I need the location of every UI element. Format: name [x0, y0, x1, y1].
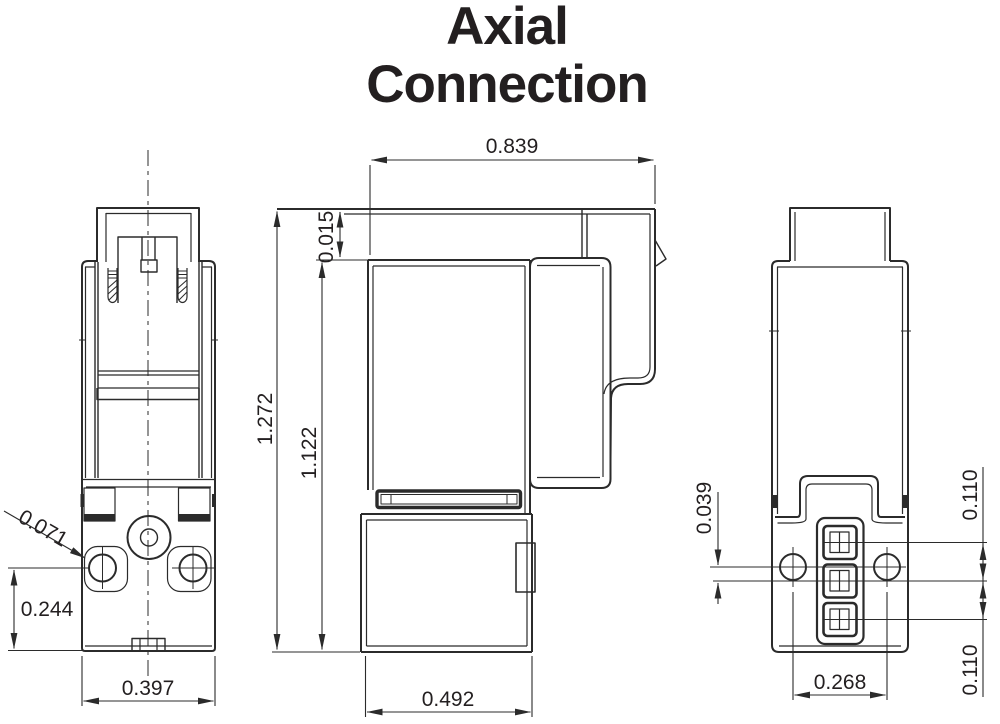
dim-side-top-gap: 0.015: [315, 211, 340, 264]
dim-label-0839: 0.839: [486, 135, 539, 158]
dim-label-1272: 1.272: [254, 393, 277, 446]
front-center-boss-circle: [128, 516, 171, 559]
dim-label-0071: 0.071: [15, 505, 72, 551]
dim-front-hole-height: 0.244: [8, 568, 90, 651]
dim-label-0268: 0.268: [814, 671, 867, 694]
dim-label-1122: 1.122: [298, 427, 321, 480]
front-boss-left: [85, 547, 128, 592]
drawing-title: Axial Connection: [366, 0, 647, 114]
dim-rear-pin-pitch: 0.110 0.110: [959, 467, 983, 697]
dim-side-body-height: 1.122: [298, 260, 368, 650]
front-boss-right: [168, 547, 212, 592]
axial-connection-drawing: Axial Connection: [0, 0, 1000, 724]
front-center-hole: [141, 529, 158, 546]
dim-side-base-width: 0.492: [366, 656, 533, 717]
dim-front-hole-diameter: 0.071: [4, 505, 85, 558]
dim-label-0492: 0.492: [422, 688, 475, 711]
front-screw-channel-right: [178, 268, 188, 303]
dim-label-0015: 0.015: [315, 211, 338, 264]
side-view: 0.839 0.015 1.272 1.122 0.492: [254, 135, 666, 717]
front-screw-channel-left: [108, 268, 118, 303]
side-label-slot: [377, 491, 521, 508]
dim-label-0397: 0.397: [122, 677, 175, 700]
front-view: 0.071 0.244 0.397: [4, 150, 218, 706]
dim-label-0110-upper: 0.110: [959, 470, 982, 521]
side-body: [277, 209, 666, 652]
rear-body: [710, 208, 987, 652]
rear-view: 0.039 0.110 0.110 0.268: [693, 208, 987, 700]
title-line-1: Axial: [446, 0, 568, 56]
dim-label-0039: 0.039: [693, 482, 716, 535]
side-latch-hook: [655, 240, 666, 266]
dim-label-0110-lower: 0.110: [959, 645, 982, 696]
title-line-2: Connection: [366, 55, 647, 114]
dim-label-0244: 0.244: [21, 598, 74, 621]
dim-side-top-width: 0.839: [370, 135, 655, 255]
technical-drawing-page: Axial Connection: [0, 0, 1000, 724]
dim-rear-hole-to-pin-offset: 0.039: [693, 482, 718, 604]
